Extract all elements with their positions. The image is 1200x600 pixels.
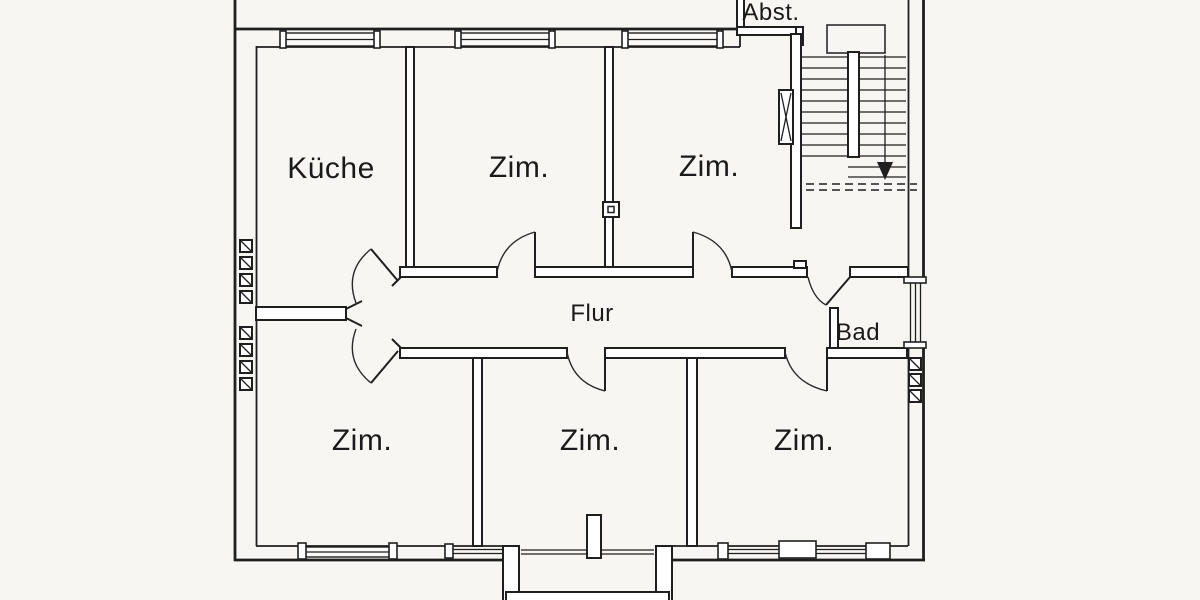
room-label-flur: Flur: [570, 300, 613, 328]
staircase: [801, 25, 917, 190]
chimney-flue-icon: [909, 358, 921, 370]
top-windows: [280, 31, 723, 48]
chimney-flue-icon: [240, 257, 252, 269]
window-icon: [622, 31, 723, 48]
bay-window: [503, 515, 672, 600]
bad-window-icon: [904, 277, 926, 348]
double-door-swing-icon: [352, 249, 398, 383]
chimney-flue-icon: [240, 291, 252, 303]
room-label-bad: Bad: [836, 319, 880, 347]
chimney-flue-icon: [240, 240, 252, 252]
room-label-kueche: Küche: [287, 152, 375, 186]
exterior-walls: [234, 0, 925, 561]
chimney-flue-icon: [240, 274, 252, 286]
chimney-flue-icon: [240, 361, 252, 373]
door-swing-icon: [567, 352, 605, 391]
room-label-zimmer-top-middle: Zim.: [489, 151, 549, 185]
window-icon: [280, 31, 380, 48]
floor-plan-canvas: Küche Zim. Zim. Abst. Flur Bad Zim. Zim.…: [0, 0, 1200, 600]
door-swing-icon: [693, 232, 732, 272]
door-swing-icon: [808, 277, 850, 305]
entrance-door-icon: [779, 90, 793, 144]
room-label-zimmer-bottom-right: Zim.: [774, 424, 834, 458]
door-swing-icon: [785, 352, 827, 391]
chimney-flue-icon: [240, 378, 252, 390]
chimney-flue-icon: [240, 327, 252, 339]
chimney-flue-icon: [240, 344, 252, 356]
door-swing-icon: [497, 232, 535, 272]
window-icon: [455, 31, 555, 48]
room-label-zimmer-bottom-middle: Zim.: [560, 424, 620, 458]
room-label-zimmer-bottom-left: Zim.: [332, 424, 392, 458]
chimney-flue-icon: [909, 374, 921, 386]
stair-down-arrow-icon: [877, 55, 893, 180]
chimney-flue-icon: [909, 390, 921, 402]
wall-socket-icon: [603, 202, 619, 217]
room-label-zimmer-top-right: Zim.: [679, 150, 739, 184]
window-icon: [718, 541, 890, 559]
room-label-abstellraum: Abst.: [742, 0, 799, 27]
